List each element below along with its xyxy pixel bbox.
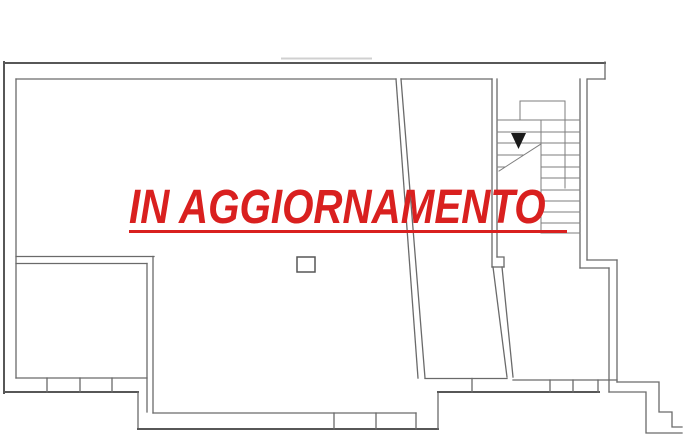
outer-walls	[4, 62, 605, 429]
stair-landing	[520, 101, 565, 188]
watermark-underline	[129, 230, 567, 233]
bottom-right-steps	[609, 382, 682, 433]
watermark-text: IN AGGIORNAMENTO	[129, 184, 546, 232]
pillar	[297, 257, 315, 272]
floorplan-canvas: IN AGGIORNAMENTO	[0, 0, 684, 442]
stair-direction-arrow-icon	[511, 133, 526, 149]
stair-break-line	[499, 144, 541, 171]
windows	[47, 378, 598, 429]
